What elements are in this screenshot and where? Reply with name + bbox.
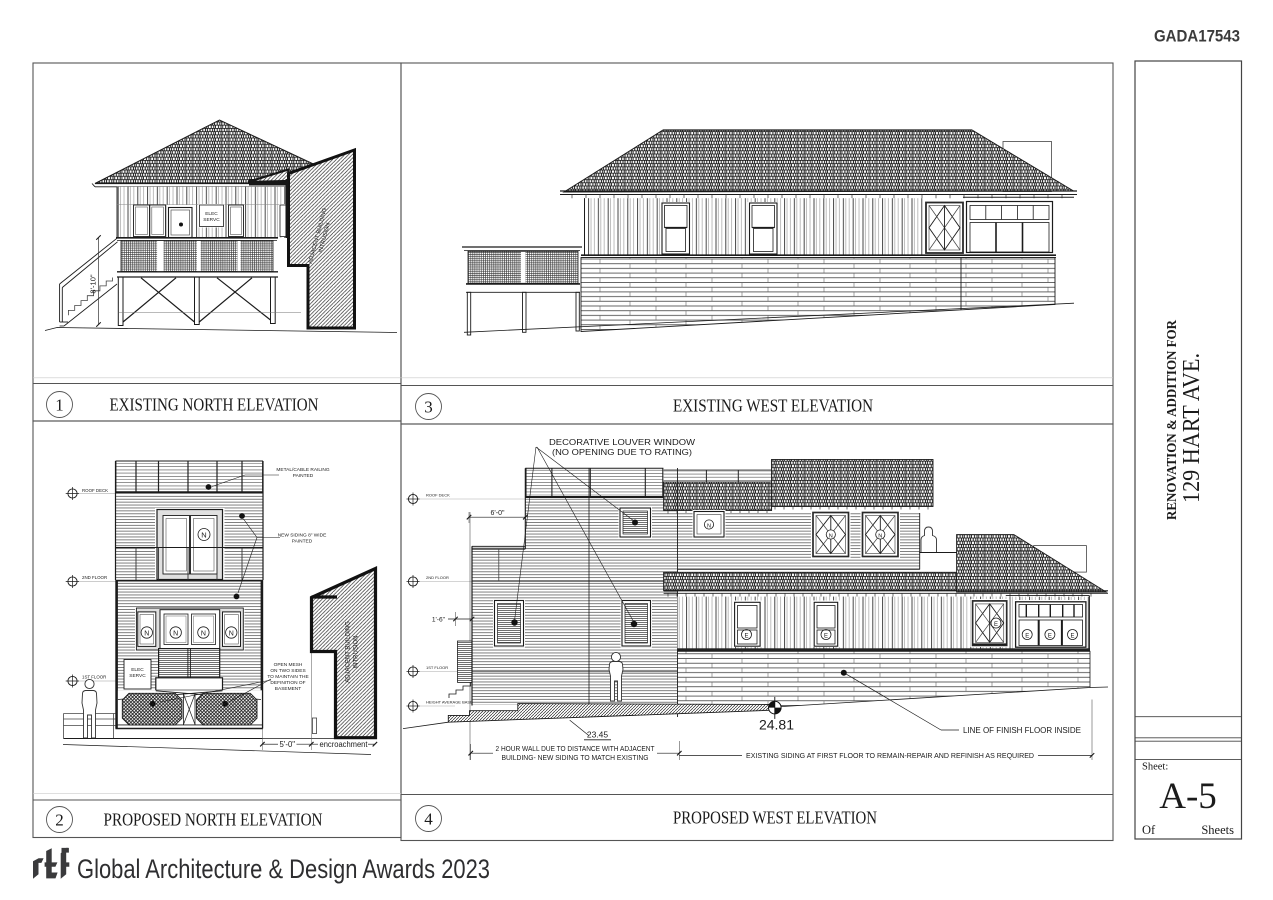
svg-text:N: N xyxy=(878,533,882,539)
svg-text:5'-0": 5'-0" xyxy=(280,740,296,749)
svg-text:3: 3 xyxy=(424,398,433,417)
svg-text:N: N xyxy=(829,533,833,539)
svg-text:2: 2 xyxy=(55,811,64,830)
svg-text:1: 1 xyxy=(55,396,64,415)
svg-text:EXISTING NORTH ELEVATION: EXISTING NORTH ELEVATION xyxy=(110,395,319,415)
svg-text:DEFINITION OF: DEFINITION OF xyxy=(270,680,305,686)
svg-text:N: N xyxy=(144,630,149,637)
svg-text:EXISTING SIDING AT FIRST FLOOR: EXISTING SIDING AT FIRST FLOOR TO REMAIN… xyxy=(746,751,1034,760)
svg-text:OPEN MESH: OPEN MESH xyxy=(274,662,303,668)
svg-text:RENOVATION & ADDITION FOR: RENOVATION & ADDITION FOR xyxy=(1164,320,1179,520)
svg-text:SERVC: SERVC xyxy=(203,217,220,223)
svg-text:E: E xyxy=(744,634,748,640)
svg-text:1ST FLOOR: 1ST FLOOR xyxy=(82,675,106,680)
svg-text:GADA17543: GADA17543 xyxy=(1154,27,1240,46)
svg-text:N: N xyxy=(201,531,206,540)
svg-text:(NO OPENING DUE TO RATING): (NO OPENING DUE TO RATING) xyxy=(552,447,692,457)
svg-text:DECORATIVE LOUVER WINDOW: DECORATIVE LOUVER WINDOW xyxy=(549,437,696,447)
svg-text:NEW SIDING 8" WIDE: NEW SIDING 8" WIDE xyxy=(278,533,327,539)
svg-text:EXISTING WEST ELEVATION: EXISTING WEST ELEVATION xyxy=(673,396,873,416)
svg-text:23.45: 23.45 xyxy=(587,729,609,739)
svg-text:E: E xyxy=(1048,634,1052,640)
svg-text:TO MAINTAIN THE: TO MAINTAIN THE xyxy=(267,674,308,680)
svg-text:N: N xyxy=(173,630,178,637)
svg-text:E: E xyxy=(994,622,998,628)
svg-text:INTRUSION: INTRUSION xyxy=(354,636,360,669)
svg-text:Sheets: Sheets xyxy=(1201,823,1234,837)
svg-text:6'-0": 6'-0" xyxy=(491,510,505,517)
svg-text:N: N xyxy=(229,630,234,637)
svg-text:ON TWO SIDES: ON TWO SIDES xyxy=(270,668,305,674)
svg-text:Sheet:: Sheet: xyxy=(1142,762,1168,773)
svg-text:ADJACENT BUILDING: ADJACENT BUILDING xyxy=(346,621,352,683)
svg-text:129 HART AVE.: 129 HART AVE. xyxy=(1179,353,1205,503)
svg-text:E: E xyxy=(1025,634,1029,640)
svg-text:PAINTED: PAINTED xyxy=(292,539,313,545)
svg-text:PROPOSED NORTH ELEVATION: PROPOSED NORTH ELEVATION xyxy=(104,810,323,830)
svg-text:2ND FLOOR: 2ND FLOOR xyxy=(426,575,449,580)
svg-text:ROOF DECK: ROOF DECK xyxy=(426,493,450,498)
svg-text:N: N xyxy=(201,630,206,637)
svg-text:encroachment: encroachment xyxy=(320,740,369,749)
svg-text:Of: Of xyxy=(1142,823,1156,837)
svg-text:4: 4 xyxy=(424,810,433,829)
svg-text:PAINTED: PAINTED xyxy=(293,473,314,479)
svg-text:E: E xyxy=(824,634,828,640)
svg-text:ELEC: ELEC xyxy=(131,667,144,673)
svg-text:HEIGHT AVERAGE BASE: HEIGHT AVERAGE BASE xyxy=(426,700,473,705)
svg-text:24.81: 24.81 xyxy=(759,716,794,732)
svg-text:SERVC: SERVC xyxy=(129,673,146,679)
svg-text:METAL/CABLE RAILING: METAL/CABLE RAILING xyxy=(276,467,329,473)
svg-text:E: E xyxy=(1070,634,1074,640)
svg-text:ELEC: ELEC xyxy=(205,211,218,217)
svg-text:LINE OF FINISH FLOOR INSIDE: LINE OF FINISH FLOOR INSIDE xyxy=(963,726,1081,735)
svg-text:ROOF DECK: ROOF DECK xyxy=(82,488,108,493)
svg-text:2ND FLOOR: 2ND FLOOR xyxy=(82,575,107,580)
svg-text:BUILDING- NEW SIDING TO MATCH: BUILDING- NEW SIDING TO MATCH EXISTING xyxy=(502,753,649,762)
svg-text:A-5: A-5 xyxy=(1159,776,1217,817)
svg-text:8'-10": 8'-10" xyxy=(89,274,98,293)
svg-text:BASEMENT: BASEMENT xyxy=(275,686,301,692)
svg-text:1'-6": 1'-6" xyxy=(432,616,446,623)
svg-text:PROPOSED WEST ELEVATION: PROPOSED WEST ELEVATION xyxy=(673,808,877,828)
svg-text:Global Architecture & Design A: Global Architecture & Design Awards 2023 xyxy=(77,854,490,884)
svg-text:N: N xyxy=(707,523,711,529)
svg-text:1ST FLOOR: 1ST FLOOR xyxy=(426,665,448,670)
